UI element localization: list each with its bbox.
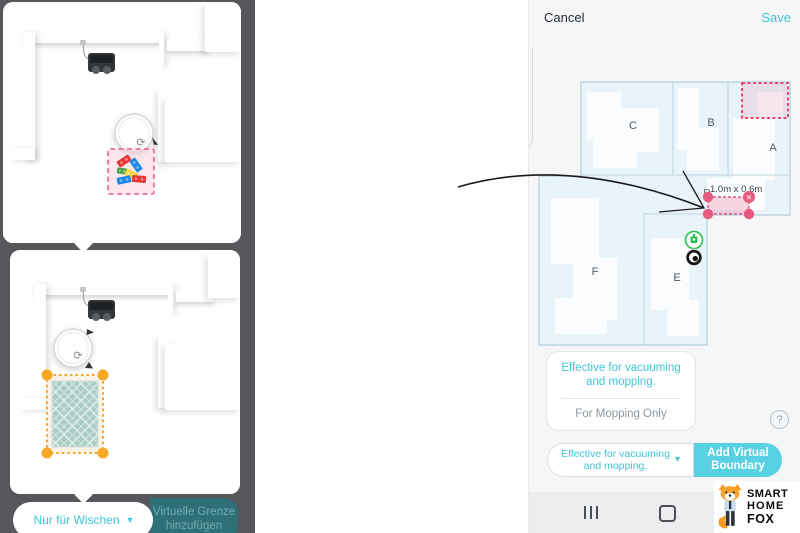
bottom-toolbar: Effective for vacuuming and mopping. ▾ A… — [529, 443, 800, 477]
preview-panel-no-go-zone: ⟳ — [3, 2, 241, 243]
mop-zone-rug[interactable] — [42, 370, 109, 459]
mode-dropdown-line1: Effective for vacuuming — [561, 448, 670, 460]
boundary-delete-button[interactable]: ✕ — [743, 191, 755, 203]
boundary-corner-handle[interactable] — [703, 209, 713, 219]
add-virtual-boundary-button-de[interactable]: Virtuelle Grenze hinzufügen — [150, 498, 238, 533]
saved-no-go-zone[interactable] — [742, 83, 788, 118]
preview-panel-mop-zone: ⟳ — [10, 250, 240, 494]
popup-primary-line2[interactable]: and mopping. — [553, 375, 689, 389]
boundary-corner-handle[interactable] — [744, 209, 754, 219]
popup-primary-line1[interactable]: Effective for vacuuming — [553, 361, 689, 375]
boundary-corner-handle[interactable] — [703, 192, 713, 202]
recents-icon[interactable] — [584, 506, 600, 519]
robot-map-icon — [686, 249, 702, 265]
home-icon[interactable] — [659, 505, 676, 522]
zone-corner-handle[interactable] — [42, 370, 53, 381]
zone-corner-handle[interactable] — [98, 448, 109, 459]
room-label-f: F — [592, 266, 599, 278]
add-button-line2: Boundary — [711, 460, 765, 474]
add-boundary-de-line2: hinzufügen — [166, 519, 222, 533]
room-label-c: C — [629, 120, 637, 132]
mop-only-label: Nur für Wischen — [33, 513, 119, 527]
room-label-b: B — [707, 117, 714, 129]
zone-corner-handle[interactable] — [42, 448, 53, 459]
add-button-line1: Add Virtual — [707, 447, 768, 461]
help-icon[interactable]: ? — [770, 410, 789, 429]
add-boundary-de-line1: Virtuelle Grenze — [153, 505, 235, 519]
chevron-down-icon: ▾ — [128, 515, 133, 526]
close-icon: ✕ — [746, 193, 752, 202]
popup-divider — [561, 398, 681, 399]
add-virtual-boundary-button[interactable]: Add Virtual Boundary — [694, 443, 782, 477]
svg-text:⟳: ⟳ — [73, 350, 82, 362]
boundary-mode-dropdown[interactable]: Effective for vacuuming and mopping. ▾ — [547, 443, 694, 477]
mode-dropdown-line2: and mopping. — [584, 460, 648, 472]
room-label-e: E — [673, 272, 680, 284]
logo-word-smart: SMART — [747, 488, 788, 500]
logo-word-fox: FOX — [747, 512, 788, 526]
chevron-down-icon: ▾ — [675, 454, 680, 466]
app-screen: Cancel Save A B C D E F — [528, 0, 800, 533]
boundary-size-label: 1.0m x 0.6m — [710, 184, 762, 195]
fox-mascot-icon — [716, 484, 744, 530]
zone-corner-handle[interactable] — [98, 370, 109, 381]
svg-text:⟳: ⟳ — [136, 137, 145, 149]
popup-secondary-option[interactable]: For Mopping Only — [553, 408, 689, 420]
smart-home-fox-logo: SMART HOME FOX — [714, 481, 800, 533]
room-label-a: A — [769, 142, 777, 154]
mop-only-dropdown-de[interactable]: Nur für Wischen ▾ — [13, 502, 153, 533]
dock-map-icon — [686, 232, 703, 249]
screenshot-root: ⟳ — [0, 0, 800, 533]
logo-word-home: HOME — [747, 500, 788, 512]
boundary-type-popup: Effective for vacuuming and mopping. For… — [546, 351, 696, 431]
